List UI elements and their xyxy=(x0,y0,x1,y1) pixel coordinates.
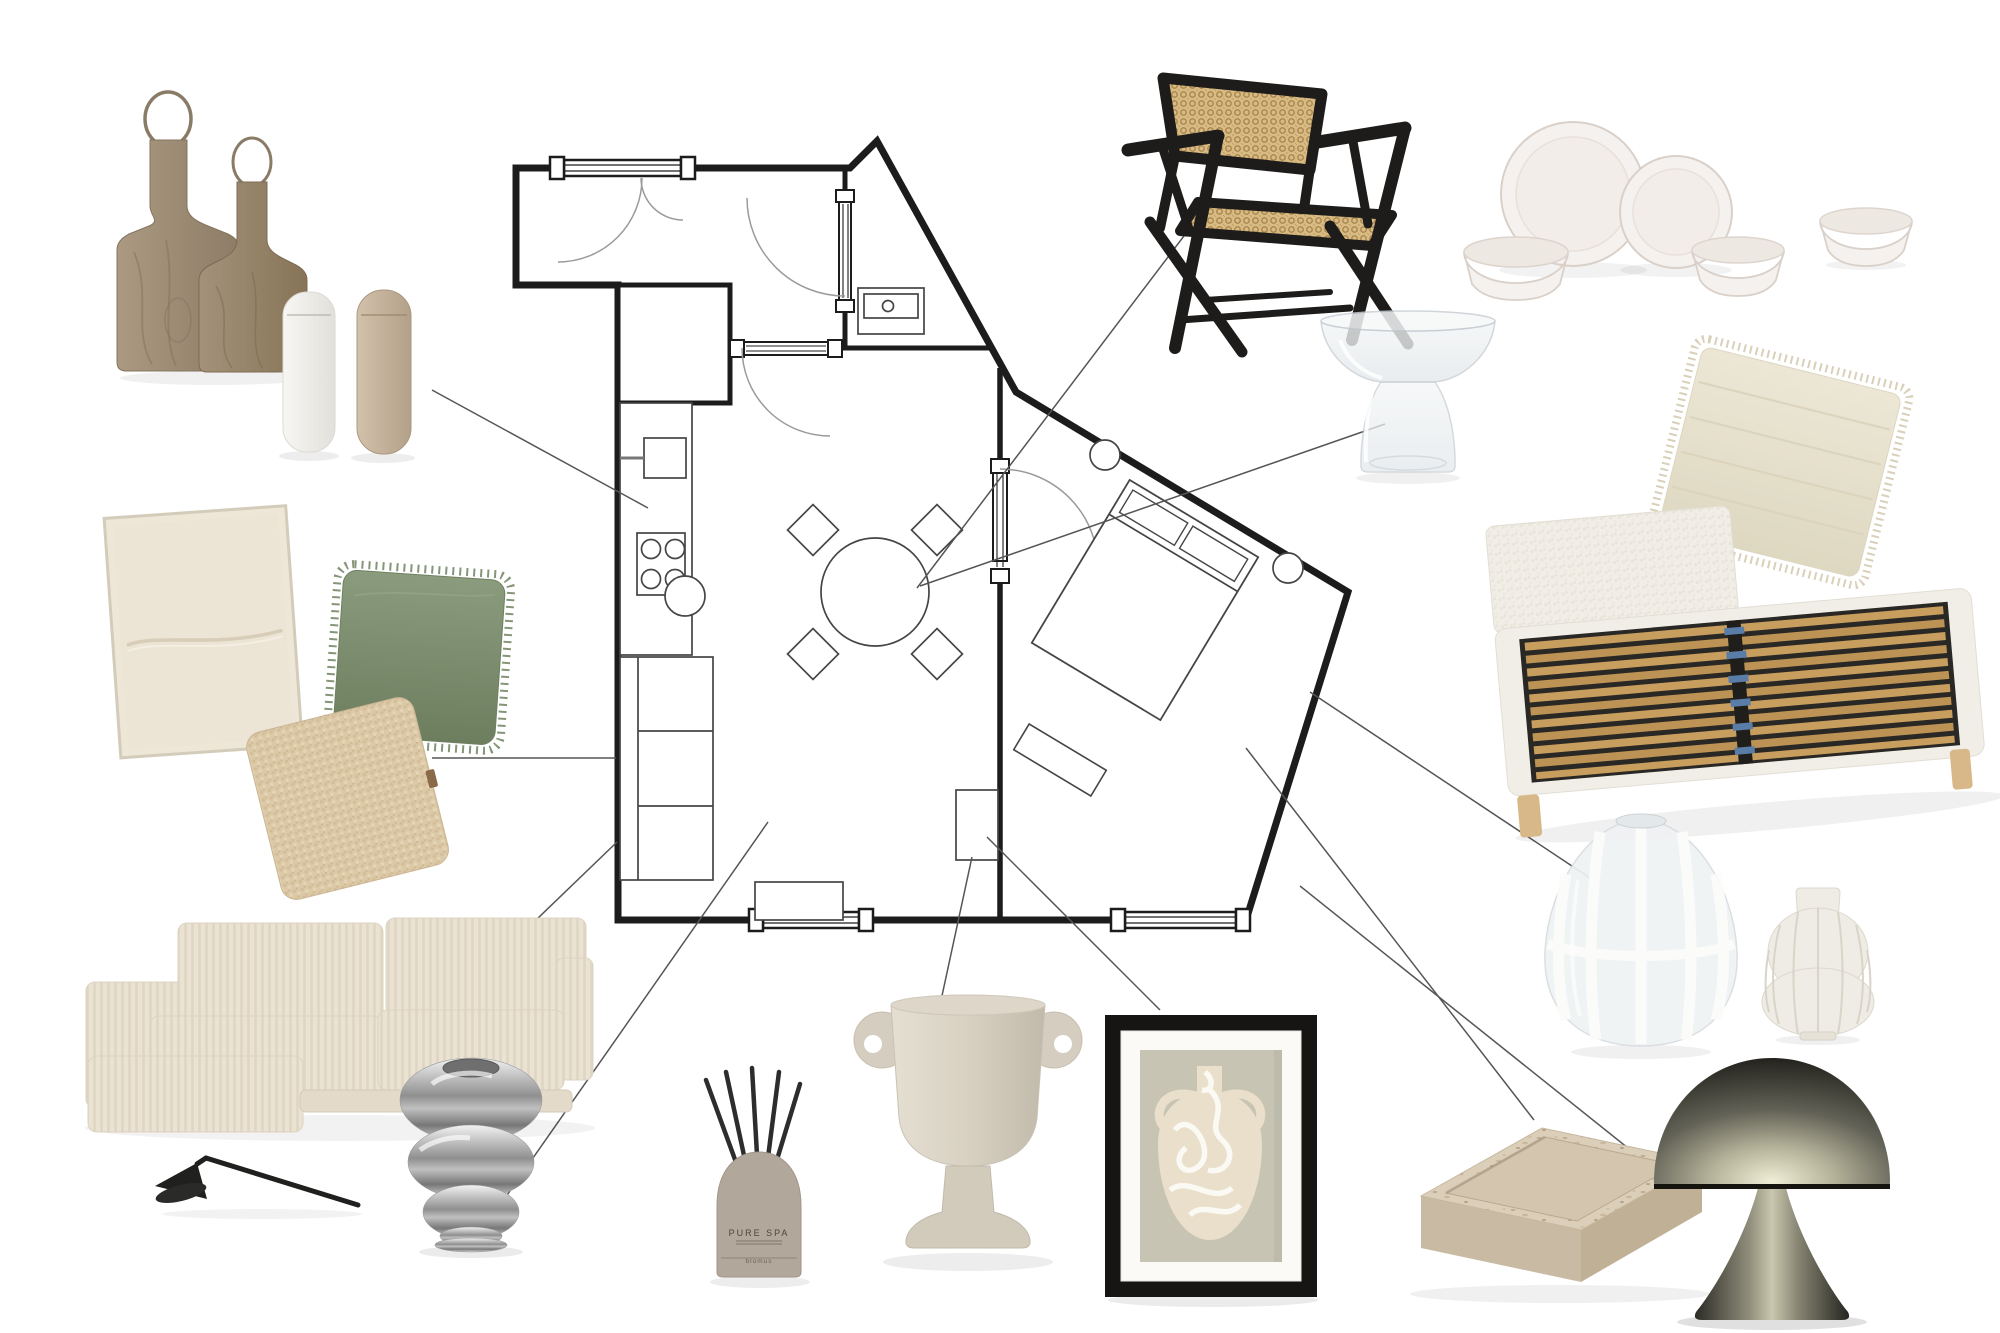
glass-side-table xyxy=(1321,311,1495,484)
floor-plan xyxy=(516,141,1348,931)
diffuser-label: PURE SPA xyxy=(729,1228,790,1238)
plan-bathroom-vanity xyxy=(858,288,924,334)
bed-leg xyxy=(1517,794,1543,838)
window-top xyxy=(550,157,695,179)
board-wire-loop xyxy=(233,138,271,186)
plan-media-console xyxy=(755,882,843,920)
candle-snuffer xyxy=(154,1158,362,1219)
plan-sofa xyxy=(620,657,713,880)
moodboard: PURE SPA blomus xyxy=(0,0,2000,1333)
urn-vase xyxy=(854,995,1082,1271)
lamp-stem xyxy=(1695,1188,1849,1320)
plan-shelf xyxy=(956,790,998,860)
framed-vase-print xyxy=(1105,1015,1318,1307)
grinder-white xyxy=(283,292,335,452)
cane-armchair xyxy=(1128,78,1408,352)
plan-nightstand xyxy=(1090,440,1120,470)
pleated-vase xyxy=(1762,888,1874,1045)
glass-table-base xyxy=(1361,382,1455,472)
door-hall-bath xyxy=(836,190,854,312)
sofa-back-cushion xyxy=(178,923,383,1020)
reed-diffuser: PURE SPA blomus xyxy=(706,1068,810,1288)
striped-glass-vase xyxy=(1545,814,1737,1059)
canvas-artwork xyxy=(104,506,302,758)
chair-cane-back xyxy=(1163,78,1322,170)
diffuser-brand: blomus xyxy=(746,1258,773,1265)
moodboard-scene: PURE SPA blomus xyxy=(0,0,2000,1333)
plan-nightstand xyxy=(1273,553,1303,583)
dinnerware-set xyxy=(1464,122,1912,300)
bed-leg xyxy=(1950,748,1973,790)
lamp-dome xyxy=(1654,1058,1890,1188)
chair-cane-seat xyxy=(1180,202,1392,246)
window-bottom-bedroom xyxy=(1111,909,1250,931)
salt-pepper-grinders xyxy=(279,290,415,463)
cutting-boards xyxy=(117,92,310,385)
urn-body xyxy=(891,1005,1045,1166)
urn-foot xyxy=(906,1166,1030,1248)
chrome-bubble-vase xyxy=(400,1058,542,1258)
board-wire-loop xyxy=(145,92,191,146)
plan-kitchen xyxy=(620,403,692,655)
sofa-chaise xyxy=(88,1056,303,1132)
plan-stool xyxy=(665,576,705,616)
bowl xyxy=(1820,208,1912,266)
door-hall-living xyxy=(730,340,842,357)
chair-armrest xyxy=(1318,128,1405,142)
plan-wardrobe xyxy=(618,285,730,403)
